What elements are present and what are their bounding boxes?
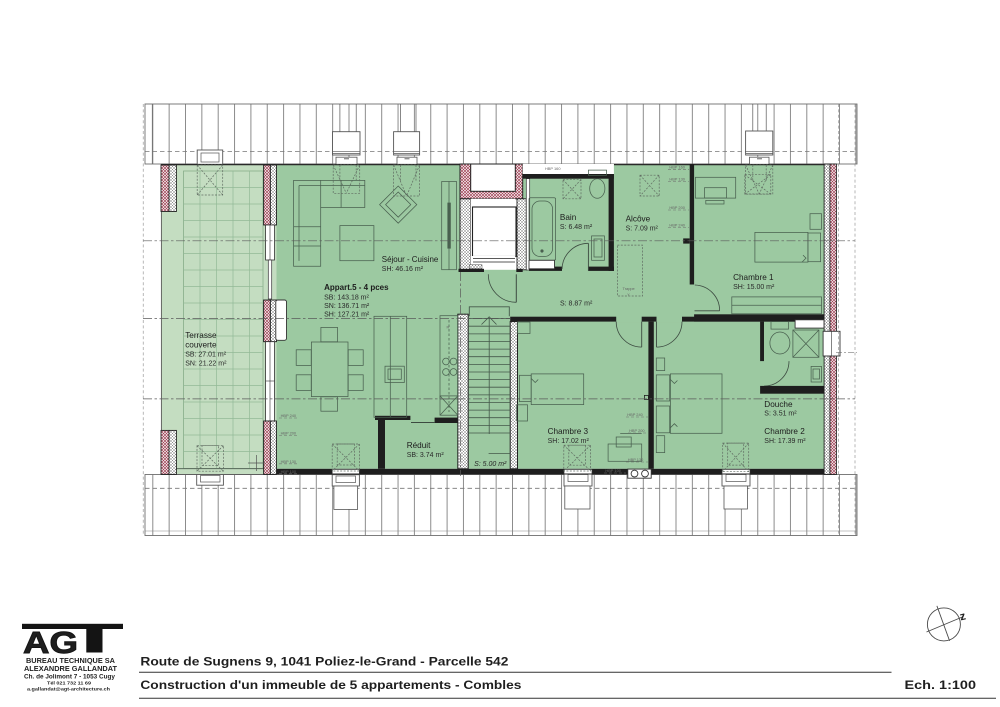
svg-text:HBP 240: HBP 240 (281, 413, 297, 418)
svg-text:SH: 127.21 m²: SH: 127.21 m² (324, 312, 370, 319)
svg-text:SH: 17.39 m²: SH: 17.39 m² (764, 438, 806, 445)
svg-text:HBP 100: HBP 100 (605, 468, 621, 473)
svg-text:HBP 130: HBP 130 (628, 457, 644, 462)
svg-text:Réduit: Réduit (407, 441, 431, 450)
svg-text:SB: 27.01 m²: SB: 27.01 m² (185, 352, 227, 359)
svg-text:Terrasse: Terrasse (185, 331, 217, 340)
svg-text:HBP 160: HBP 160 (545, 166, 561, 171)
svg-text:SN: 21.22 m²: SN: 21.22 m² (185, 361, 227, 368)
svg-text:Séjour - Cuisine: Séjour - Cuisine (382, 255, 439, 264)
svg-text:HBP 240: HBP 240 (669, 223, 685, 228)
svg-text:Ch. de Jolimont 7 - 1053 Cugy: Ch. de Jolimont 7 - 1053 Cugy (24, 675, 116, 681)
svg-text:Douche: Douche (764, 400, 793, 409)
svg-text:SN: 136.71 m²: SN: 136.71 m² (324, 303, 370, 310)
svg-text:Bain: Bain (560, 213, 577, 222)
svg-text:HBP 200: HBP 200 (281, 431, 297, 436)
svg-text:Ech. 1:100: Ech. 1:100 (905, 678, 977, 692)
svg-text:S: 3.51 m²: S: 3.51 m² (764, 411, 797, 418)
svg-text:HBP 130: HBP 130 (281, 459, 297, 464)
svg-text:Route de Sugnens 9, 1041 Polie: Route de Sugnens 9, 1041 Poliez-le-Grand… (140, 655, 508, 669)
svg-text:HBP 160: HBP 160 (669, 165, 685, 170)
svg-text:v: v (628, 292, 630, 297)
svg-text:HBP 200: HBP 200 (669, 205, 685, 210)
svg-text:HBP 240: HBP 240 (627, 412, 643, 417)
svg-text:a.gallandat@agt-architecture.c: a.gallandat@agt-architecture.ch (27, 687, 110, 693)
svg-text:R: R (447, 325, 450, 330)
svg-text:HBP 200: HBP 200 (629, 428, 645, 433)
svg-text:couverte: couverte (185, 341, 217, 350)
svg-text:SH: 15.00 m²: SH: 15.00 m² (733, 284, 775, 291)
svg-text:HBP 130: HBP 130 (669, 177, 685, 182)
svg-text:SH: 46.16 m²: SH: 46.16 m² (382, 266, 424, 273)
svg-text:ALEXANDRE GALLANDAT: ALEXANDRE GALLANDAT (24, 664, 117, 673)
svg-text:S: 7.09 m²: S: 7.09 m² (626, 226, 659, 233)
svg-text:Chambre 1: Chambre 1 (733, 273, 774, 282)
svg-text:Trappe: Trappe (623, 286, 635, 291)
svg-text:Tél 021 732 11 69: Tél 021 732 11 69 (47, 681, 91, 687)
svg-text:SH: 17.02 m²: SH: 17.02 m² (548, 438, 590, 445)
svg-text:S: 8.87 m²: S: 8.87 m² (560, 300, 593, 307)
svg-text:Chambre 2: Chambre 2 (764, 427, 805, 436)
svg-text:S: 6.48 m²: S: 6.48 m² (560, 224, 593, 231)
svg-text:Chambre 3: Chambre 3 (548, 427, 589, 436)
svg-text:Appart.5 - 4 pces: Appart.5 - 4 pces (324, 283, 389, 292)
svg-text:AG: AG (23, 626, 78, 660)
svg-text:S: 5.00 m²: S: 5.00 m² (474, 461, 507, 468)
svg-text:Alcôve: Alcôve (626, 215, 651, 224)
svg-text:HBP 100: HBP 100 (281, 469, 297, 474)
svg-text:SB: 143.18 m²: SB: 143.18 m² (324, 295, 369, 302)
svg-text:Construction d'un immeuble de: Construction d'un immeuble de 5 appartem… (140, 678, 521, 692)
svg-text:SB: 3.74 m²: SB: 3.74 m² (407, 452, 445, 459)
